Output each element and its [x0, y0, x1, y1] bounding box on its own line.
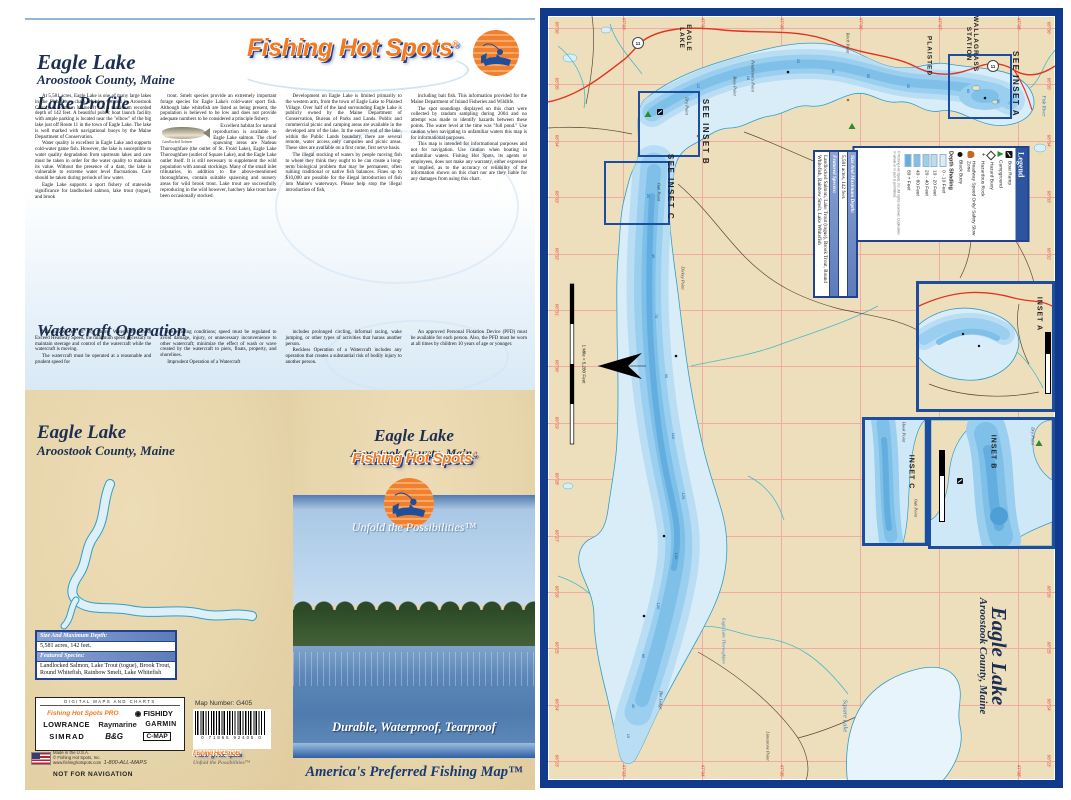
inset-scale-bar [939, 450, 945, 522]
route-11-shield: 11 [987, 60, 999, 72]
brand-bg: B&G [105, 732, 123, 741]
point-label-limestone: Limestone Point [765, 731, 770, 760]
inset-c-hook-point: Hook Point [901, 422, 906, 443]
info-page: Eagle Lake Aroostook County, Maine Lake … [25, 18, 535, 392]
back-cover-title: Eagle Lake [37, 422, 126, 444]
cover-tagline: Unfold the Possibilities™ [293, 520, 535, 535]
inset-b: INSET B Dry Point [928, 417, 1055, 549]
lake-profile-col-4: including bait fish. This information pr… [411, 94, 527, 306]
map-title-text: Eagle Lake [988, 607, 1010, 706]
square-lake-shape [847, 667, 962, 780]
lake-profile-col-2: trout. Smelt species provide an extremel… [160, 94, 276, 306]
partners-header: DIGITAL MAPS AND CHARTS [40, 699, 180, 706]
size-depth-header: Size And Maximum Depth: [37, 632, 175, 642]
lake-profile-columns: At 5,581 acres, Eagle Lake is one of man… [35, 94, 527, 306]
inset-scale-bar [1045, 332, 1051, 394]
scale-bar [570, 284, 574, 444]
inset-a-label: INSET A [1035, 297, 1042, 331]
species-value: Landlocked Salmon, Lake Trout (togue), B… [815, 152, 829, 296]
watercraft-columns: Within 200 feet of any Shore, Watercraft… [35, 330, 527, 388]
brand-raymarine: Raymarine [98, 720, 136, 729]
map-legend: Legend Boat Ramp Campground Hazard Buoy … [853, 146, 1030, 242]
legend-item-label: Hazard Buoy [989, 162, 994, 190]
front-cover: Eagle Lake Aroostook County, Maine Fishi… [293, 390, 535, 790]
us-flag-icon [31, 752, 51, 765]
point-label-ledge: The Ledge [658, 691, 663, 710]
not-for-navigation: NOT FOR NAVIGATION [53, 771, 133, 778]
fishing-map-scan: Eagle Lake Aroostook County, Maine Lake … [0, 0, 1071, 800]
square-lake-label: Square Lake [841, 700, 848, 732]
phone-number: 1-800-ALL-MAPS [104, 760, 147, 766]
depth-swatch [939, 154, 946, 167]
watercraft-col-3: includes prolonged circling, informal ra… [286, 330, 402, 388]
point-label-dickey: Dickey Point [680, 266, 685, 289]
inset-b-dry-point: Dry Point [1030, 427, 1035, 445]
depth-swatch [914, 154, 921, 167]
fish-river-label: Fish River [1040, 96, 1045, 117]
legend-item-label: Hazardous Rock [979, 161, 984, 196]
partner-brands-box: DIGITAL MAPS AND CHARTS Fishing Hot Spot… [35, 697, 185, 751]
salmon-caption: Landlocked Salmon [162, 140, 192, 146]
inset-c: INSET C Hook Point Oak Point [862, 417, 928, 546]
point-label-pendleton: Pendleton's Point [750, 60, 755, 92]
depth-swatch [931, 154, 938, 167]
size-depth-value: 5,581 acres, 142 feet. [37, 642, 175, 652]
depth-shading-label: Depth Shading [948, 151, 954, 237]
thoroughfare-label: Eagle Lake Thoroughfare [721, 618, 726, 664]
map-frame: 68°36'68°36'68°35'68°35'68°34'68°34'68°3… [540, 8, 1063, 788]
lake-outline-thumbnail [30, 478, 265, 638]
cover-photo-sparkle [293, 652, 535, 686]
brand-fishidy: ◉ FISHIDY [135, 709, 173, 718]
inset-a: INSET A [916, 281, 1055, 412]
map-sheet-title: Eagle Lake Aroostook County, Maine [976, 598, 1010, 715]
depth-swatch [922, 154, 929, 167]
page-subtitle: Aroostook County, Maine [37, 72, 175, 88]
see-inset-c-label: SEE INSET C [666, 154, 674, 220]
size-depth-header: Size And Maximum Depth: [847, 152, 856, 296]
fisherman-logo-icon [473, 30, 519, 76]
map-subtitle-text: Aroostook County, Maine [976, 598, 988, 715]
cover-footer-slogan: America's Preferred Fishing Map™ [293, 764, 535, 781]
inset-c-label: INSET C [907, 455, 914, 490]
point-label-birch: Birch Point [845, 33, 850, 54]
lake-profile-col-3: Development on Eagle Lake is limited pri… [286, 94, 402, 306]
brand-fhs-pro: Fishing Hot Spots PRO [47, 710, 119, 717]
back-cover-subtitle: Aroostook County, Maine [37, 443, 175, 459]
inset-b-label: INSET B [989, 435, 996, 470]
map-content: 68°36'68°36'68°35'68°35'68°34'68°34'68°3… [548, 16, 1055, 780]
barcode: 0 71865 92405 0 [193, 709, 271, 749]
watercraft-col-1: Within 200 feet of any Shore, Watercraft… [35, 330, 151, 388]
lake-facts-table: Size And Maximum Depth: 5,581 acres, 142… [35, 630, 177, 680]
salmon-illustration [162, 127, 206, 139]
salmon-tail [203, 128, 210, 138]
inset-c-oak-point: Oak Point [913, 499, 918, 517]
cover-photo-trees [293, 610, 535, 646]
town-label-plaisted: PLAISTED [925, 36, 932, 76]
brand-tagline-small: Unfold the Possibilities™ [193, 760, 250, 766]
barcode-stripes [195, 711, 265, 735]
map-page: 68°36'68°36'68°35'68°35'68°34'68°34'68°3… [538, 6, 1071, 794]
species-header: Featured Species: [37, 652, 175, 662]
durability-text: Durable, Waterproof, Tearproof [293, 720, 535, 735]
brand-cmap: C-MAP [143, 732, 170, 741]
front-cover-brand-logo: Fishing Hot Spots® [293, 450, 535, 467]
legend-item-label: Campground [998, 160, 1003, 188]
publisher-info: Made in the U.S.A. © Fishing Hot Spots, … [53, 750, 147, 766]
campground-icon [849, 123, 856, 129]
barcode-digits: 0 71865 92405 0 [195, 735, 269, 740]
town-label-wallagrass: WALLAGRASS STATION [964, 16, 978, 72]
front-cover-title: Eagle Lake [293, 426, 535, 446]
brand-small-logo: Fishing Hot Spots [193, 750, 240, 757]
see-inset-b-label: SEE INSET B [701, 99, 709, 165]
hazard-buoy-icon [986, 151, 996, 161]
point-label-oak: Oak Point [656, 183, 661, 201]
map-lake-facts-box: Size And Maximum Depth: 5,581 acres, 142… [772, 150, 858, 298]
logo-swoosh [235, 48, 469, 92]
watercraft-col-2: the existing conditions; speed must be r… [160, 330, 276, 388]
legend-title: Legend [1016, 148, 1028, 240]
lake-profile-col-1: At 5,581 acres, Eagle Lake is one of man… [35, 94, 151, 306]
point-label-dry: Dry Point [684, 97, 689, 115]
scale-text: 1 Mile = 5,280 Feet [581, 345, 586, 384]
legend-copyright: © Fishing Hot Spots, Inc. All rights res… [893, 151, 901, 237]
hazardous-rock-icon: + [978, 151, 985, 158]
brand-lowrance: LOWRANCE [43, 720, 90, 729]
species-header: Featured Species: [829, 152, 838, 296]
cover-blue-band-bottom [293, 743, 535, 758]
campground-icon [997, 151, 1003, 157]
salmon-photo: Landlocked Salmon [160, 125, 210, 146]
size-depth-value: 5,581 acres, 142 feet. [838, 152, 847, 296]
headway-speed-icon [967, 151, 974, 158]
see-inset-a-box [948, 54, 1012, 119]
brand-simrad: SIMRAD [49, 732, 85, 741]
black-buoy-icon [958, 152, 963, 157]
website: www.fishinghotspots.com [53, 760, 101, 765]
see-inset-b-box [638, 91, 700, 157]
legend-item-label: Black Buoy [958, 160, 963, 184]
map-number: Map Number: G405 [195, 700, 252, 707]
point-label-boys: Boys Point [732, 76, 737, 96]
route-11-shield: 11 [632, 37, 644, 49]
legend-item-label: Headway Speed Only/ Safety Slow Zone [966, 161, 976, 237]
depth-swatch [905, 154, 912, 167]
brand-garmin: GARMIN [145, 721, 176, 728]
town-label-eagle-lake: EAGLE LAKE [677, 24, 691, 51]
watercraft-col-4: An approved Personal Flotation Device (P… [411, 330, 527, 388]
see-inset-a-label: SEE INSET A [1011, 51, 1019, 117]
back-cover: Eagle Lake Aroostook County, Maine Size … [25, 390, 293, 790]
boat-ramp-icon [1006, 151, 1013, 158]
species-value: Landlocked Salmon, Lake Trout (togue), B… [37, 662, 175, 678]
legend-item-label: Boat Ramp [1007, 161, 1012, 185]
registered-mark: ® [452, 40, 457, 49]
